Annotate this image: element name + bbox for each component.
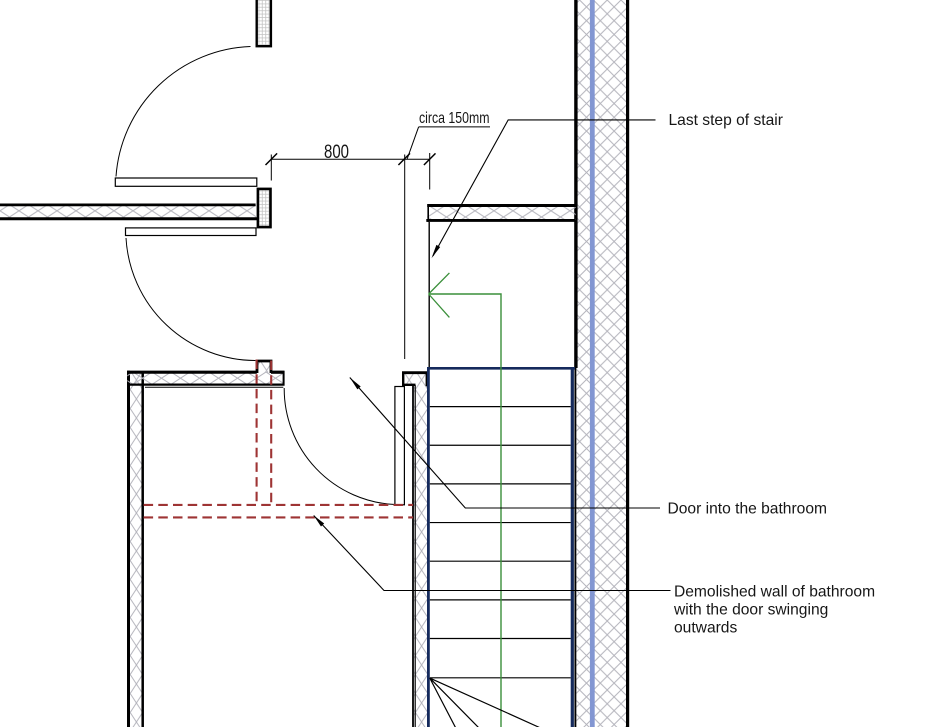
svg-text:circa 150mm: circa 150mm [419,109,489,127]
svg-text:Demolished wall of bathroom: Demolished wall of bathroom [674,584,875,601]
svg-text:with the door swinging: with the door swinging [673,602,828,619]
svg-text:outwards: outwards [674,620,737,637]
svg-text:Last step of stair: Last step of stair [669,112,783,129]
svg-text:800: 800 [324,140,349,162]
svg-text:Door into the bathroom: Door into the bathroom [668,501,828,518]
